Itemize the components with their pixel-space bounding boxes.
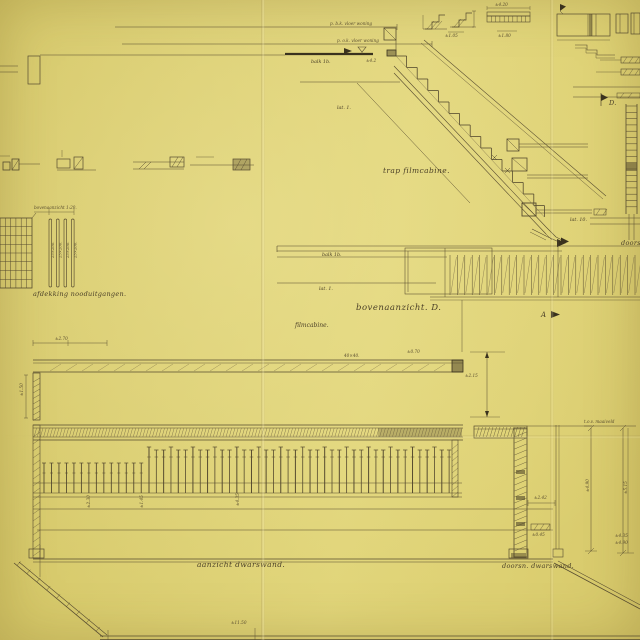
label-afdekking-scale: bovenaanzicht 1:20.: [34, 205, 77, 210]
label-doorsn-dwarswand: doorsn. dwarswand.: [502, 562, 574, 570]
label-balk-section: balk 1b.: [311, 59, 331, 65]
dim-070: ±0.70: [407, 349, 420, 354]
dim-490: ±4.90: [585, 479, 590, 492]
crosswall-section: [474, 425, 592, 558]
detail-beam-top: [487, 6, 530, 31]
label-bovenaanzicht-d: bovenaanzicht. D.: [356, 303, 441, 313]
details-top-right: [557, 4, 640, 106]
bottom-plan-beam: [24, 340, 505, 421]
label-doorsn-right-edge: doorsn.: [621, 239, 640, 247]
dim-1150: ±11.50: [231, 620, 247, 625]
section-marker-d: D.: [608, 99, 617, 107]
dim-420: ±4.20: [495, 2, 508, 7]
dim-270: ±2.70: [55, 336, 68, 341]
dim-215: ±2.15: [465, 373, 478, 378]
top-left-lines: [0, 24, 470, 203]
stair-section: [384, 28, 606, 245]
label-balk-plan: balk 1b.: [322, 252, 342, 258]
dim-435r: ±4.35: [615, 533, 628, 538]
bottom-elevation: [29, 425, 553, 558]
dim-150: ±1.50: [19, 383, 24, 396]
dim-105: ±1.05: [445, 33, 458, 38]
dim-435: ±4.35: [235, 493, 240, 506]
dim-230: ±2.30: [86, 495, 91, 508]
label-maaiveld: t.o.v. maaiveld: [584, 419, 615, 424]
label-lat-section: lat. 1.: [337, 105, 351, 111]
label-peil-boven: p. b.k. vloer woning: [330, 21, 372, 26]
detail-step-profiles: [423, 11, 476, 32]
label-aanzicht-dwarswand: aanzicht dwarswand.: [197, 560, 285, 569]
slat-size-label: 25×200.: [58, 242, 63, 259]
slat-size-label: 25×200.: [50, 242, 55, 259]
drawing-svg: trap filmcabine. bovenaanzicht. D. filmc…: [0, 0, 640, 640]
label-trap-filmcabine: trap filmcabine.: [383, 166, 450, 175]
dim-145: ±1.45: [139, 495, 144, 508]
section-marker-a: A: [540, 311, 546, 319]
dim-4040: 40×40.: [343, 353, 360, 358]
right-dim-chains: [584, 425, 636, 556]
bottom-ground: [14, 545, 640, 640]
dim-045: ±0.45: [532, 532, 545, 537]
slat-size-label: 25×200.: [65, 242, 70, 259]
dim-515: ±5.15: [623, 481, 628, 494]
ladder-section: [590, 104, 640, 240]
label-afdekking-nooduitgangen: afdekking nooduitgangen.: [33, 290, 126, 298]
slat-size-label: 25×200.: [73, 242, 78, 259]
label-peil-onder: p. o.k. vloer woning: [337, 38, 379, 43]
dim-490r: ±4.90: [615, 540, 628, 545]
label-filmcabine: filmcabine.: [294, 322, 329, 329]
dim-242: ±2.42: [534, 495, 547, 500]
dim-42: ±4.2: [366, 58, 377, 63]
label-lat-plan: lat. 1.: [319, 286, 333, 292]
paper-sheet: trap filmcabine. bovenaanzicht. D. filmc…: [0, 0, 640, 640]
label-lat-10: lat. 10.: [570, 217, 587, 223]
detail-clusters-left: [0, 150, 254, 170]
grid-mesh: [0, 213, 36, 288]
drawing-labels: trap filmcabine. bovenaanzicht. D. filmc…: [19, 2, 640, 625]
dim-180: ±1.80: [498, 33, 511, 38]
